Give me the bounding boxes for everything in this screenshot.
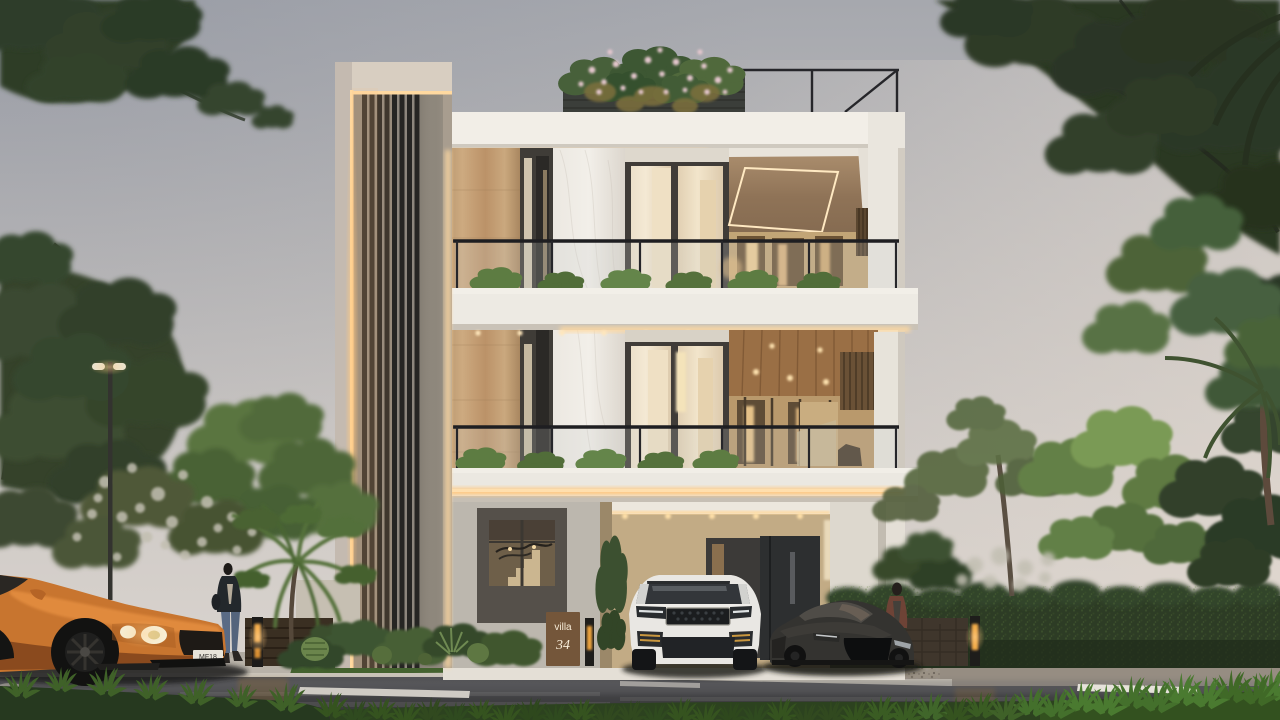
svg-text:34: 34 xyxy=(555,638,570,653)
svg-text:villa: villa xyxy=(554,622,572,633)
